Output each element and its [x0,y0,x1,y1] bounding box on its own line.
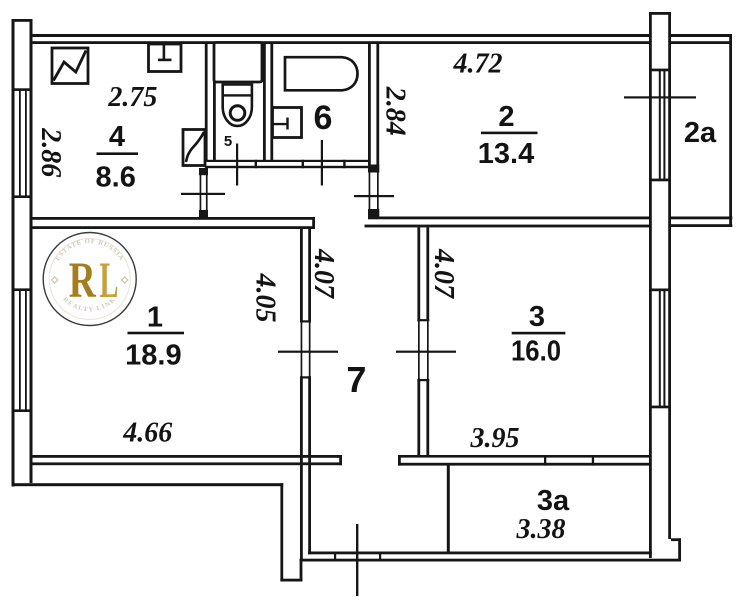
svg-text:4.07: 4.07 [308,248,339,299]
svg-text:4: 4 [109,121,125,153]
svg-text:3: 3 [529,301,545,333]
svg-text:3a: 3a [537,485,570,517]
svg-text:4.72: 4.72 [453,49,503,80]
svg-text:2: 2 [498,101,514,133]
svg-text:7: 7 [346,359,366,400]
svg-text:6: 6 [314,99,333,137]
svg-text:R: R [69,253,97,309]
svg-text:8.6: 8.6 [96,161,136,193]
svg-text:2.84: 2.84 [380,86,411,136]
svg-text:16.0: 16.0 [511,335,561,367]
svg-text:13.4: 13.4 [478,138,534,170]
svg-text:3.38: 3.38 [516,514,566,545]
svg-text:4.66: 4.66 [122,417,172,448]
svg-text:2.86: 2.86 [35,127,66,177]
svg-text:4.05: 4.05 [250,273,281,323]
svg-text:2a: 2a [684,117,717,149]
svg-text:4.07: 4.07 [428,248,459,299]
svg-text:2.75: 2.75 [107,82,157,113]
svg-text:L: L [100,253,119,309]
svg-text:1: 1 [147,301,163,333]
svg-text:18.9: 18.9 [125,340,181,372]
svg-text:5: 5 [224,133,232,150]
svg-text:3.95: 3.95 [470,423,520,454]
